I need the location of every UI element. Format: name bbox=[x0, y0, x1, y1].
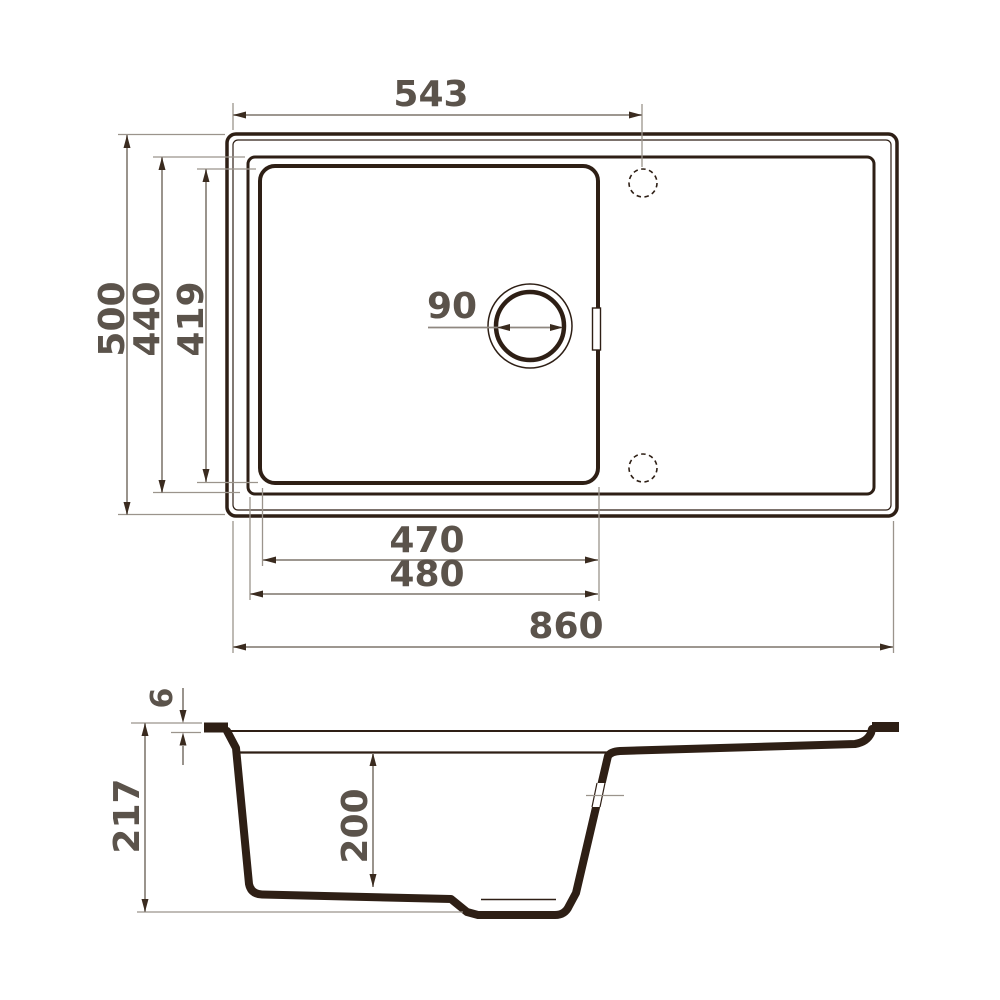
dimension-860: 860 bbox=[233, 521, 894, 653]
dim-label-860: 860 bbox=[528, 606, 603, 647]
dimension-217: 217 bbox=[107, 723, 463, 912]
dimension-6: 6 bbox=[131, 688, 202, 765]
sink-technical-drawing: 543 500 440 419 bbox=[0, 0, 1000, 1000]
dim-label-90: 90 bbox=[427, 286, 477, 327]
tap-hole-bottom-dashed-circle bbox=[629, 454, 657, 482]
section-profile bbox=[227, 729, 872, 915]
dimension-200: 200 bbox=[335, 753, 377, 887]
dim-label-200: 200 bbox=[335, 788, 376, 863]
sink-rim-inner-edge bbox=[248, 157, 874, 494]
dimension-543: 543 bbox=[233, 74, 642, 167]
top-view: 543 500 440 419 bbox=[92, 74, 897, 653]
dim-label-6: 6 bbox=[145, 688, 180, 709]
dim-label-440: 440 bbox=[127, 281, 168, 356]
sink-technical-drawing-page: 543 500 440 419 bbox=[0, 0, 1000, 1000]
side-section-view: 6 217 200 bbox=[107, 688, 899, 915]
drain-outer-circle bbox=[488, 284, 572, 368]
dimension-419: 419 bbox=[171, 169, 258, 483]
dim-label-419: 419 bbox=[171, 281, 212, 356]
dim-label-543: 543 bbox=[393, 74, 468, 115]
overflow-slot bbox=[593, 308, 601, 350]
tap-hole-top-dashed-circle bbox=[629, 169, 657, 197]
dim-label-480: 480 bbox=[389, 554, 464, 595]
dim-label-217: 217 bbox=[107, 778, 148, 853]
overflow-section-mark bbox=[586, 783, 624, 807]
